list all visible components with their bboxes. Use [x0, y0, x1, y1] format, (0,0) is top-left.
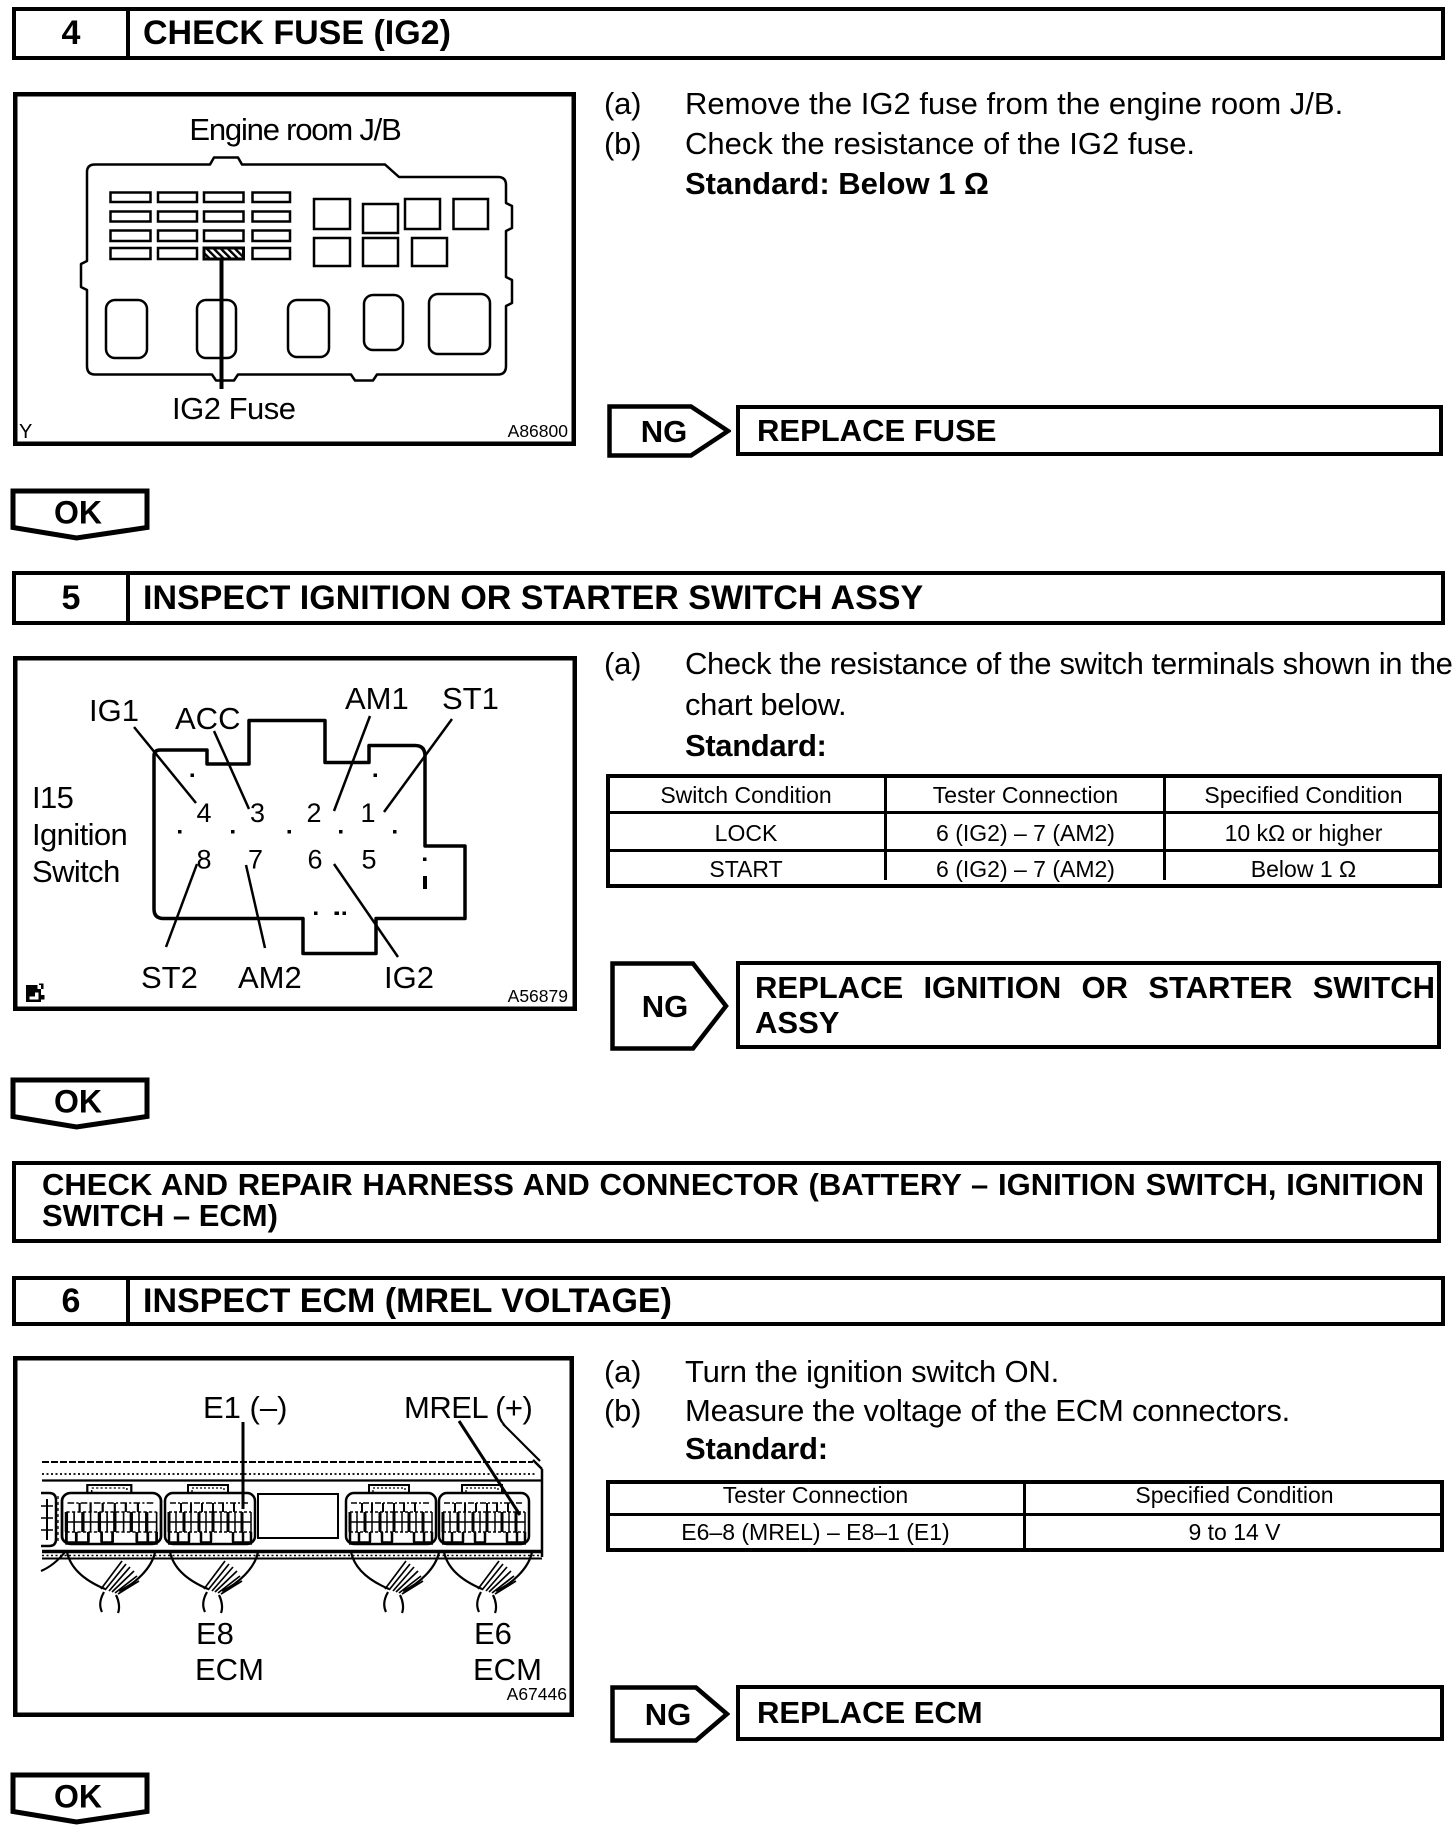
svg-text:IG1: IG1	[89, 693, 139, 728]
svg-text:Switch: Switch	[32, 854, 120, 889]
svg-text:NG: NG	[641, 414, 688, 449]
svg-text:ECM: ECM	[473, 1652, 542, 1687]
svg-text:NG: NG	[642, 989, 689, 1024]
svg-text:Engine room J/B: Engine room J/B	[189, 112, 401, 147]
svg-text:ST1: ST1	[442, 681, 499, 716]
svg-text:6: 6	[307, 845, 322, 875]
svg-text:ST2: ST2	[141, 960, 198, 995]
svg-text:4: 4	[196, 798, 211, 828]
svg-text:ACC: ACC	[175, 701, 240, 736]
svg-text:ECM: ECM	[195, 1652, 264, 1687]
svg-text:I15: I15	[32, 780, 73, 815]
svg-text:MREL (+): MREL (+)	[404, 1390, 532, 1425]
svg-text:A67446: A67446	[507, 1684, 567, 1704]
svg-text:OK: OK	[54, 1779, 102, 1815]
svg-text:E1 (–): E1 (–)	[203, 1390, 287, 1425]
svg-text:IG2 Fuse: IG2 Fuse	[172, 391, 296, 426]
svg-text:OK: OK	[54, 1084, 102, 1120]
svg-text:3: 3	[250, 798, 265, 828]
svg-text:1: 1	[360, 798, 375, 828]
svg-text:NG: NG	[645, 1697, 692, 1732]
svg-text:OK: OK	[54, 495, 102, 531]
svg-text:5: 5	[361, 845, 376, 875]
svg-text:Ignition: Ignition	[32, 817, 127, 852]
svg-text:2: 2	[306, 798, 321, 828]
svg-text:AM1: AM1	[345, 681, 409, 716]
svg-text:AM2: AM2	[238, 960, 302, 995]
svg-text:A56879: A56879	[508, 986, 568, 1006]
svg-text:E8: E8	[196, 1616, 234, 1651]
svg-text:E6: E6	[474, 1616, 512, 1651]
svg-text:A86800: A86800	[508, 421, 569, 441]
svg-text:IG2: IG2	[384, 960, 434, 995]
svg-text:Y: Y	[19, 421, 32, 443]
svg-text:7: 7	[248, 845, 263, 875]
svg-text:8: 8	[196, 845, 211, 875]
